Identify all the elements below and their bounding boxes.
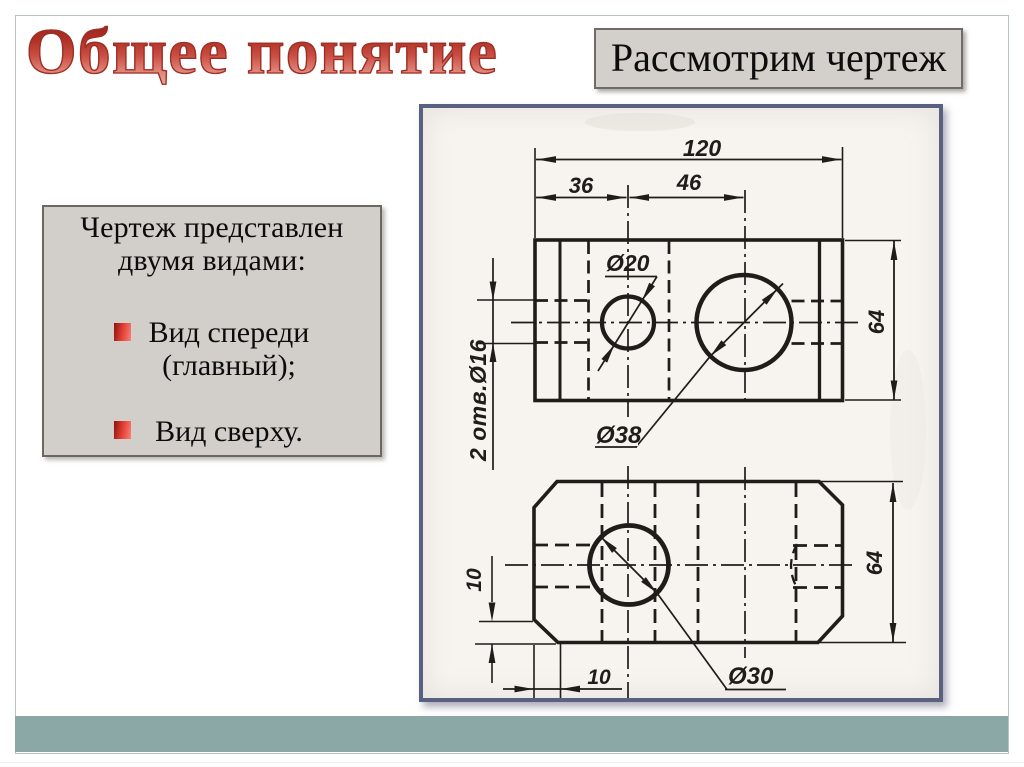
svg-text:Ø20: Ø20 [606, 250, 650, 276]
svg-text:10: 10 [463, 568, 486, 592]
svg-text:64: 64 [864, 310, 889, 334]
svg-text:Ø38: Ø38 [596, 422, 642, 449]
svg-text:64: 64 [862, 551, 887, 575]
svg-text:2 отв.Ø16: 2 отв.Ø16 [465, 339, 491, 462]
svg-text:120: 120 [683, 135, 722, 161]
svg-text:46: 46 [676, 170, 702, 195]
svg-text:36: 36 [569, 173, 594, 198]
svg-text:10: 10 [587, 666, 611, 689]
svg-text:Ø30: Ø30 [728, 663, 774, 690]
